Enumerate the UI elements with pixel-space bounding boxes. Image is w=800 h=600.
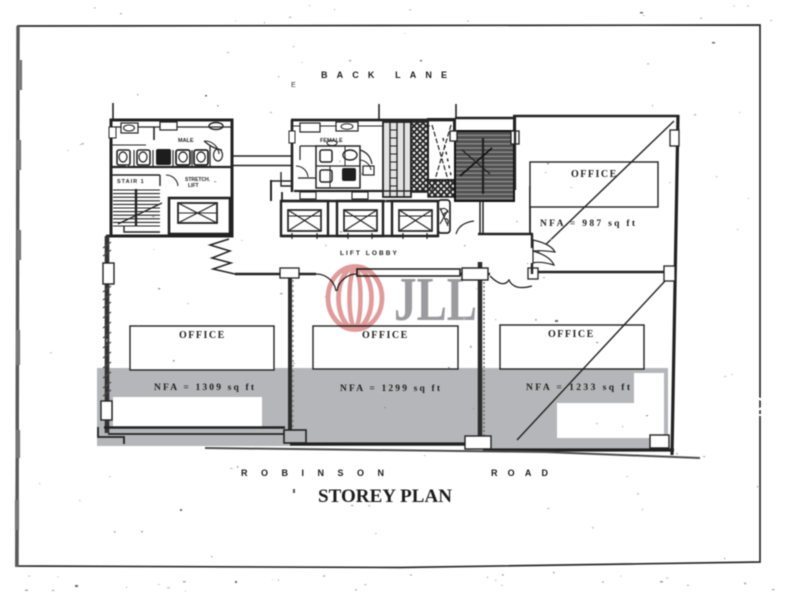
svg-text:ROAD: ROAD	[491, 468, 561, 478]
svg-text:OFFICE: OFFICE	[571, 169, 618, 180]
svg-text:OFFICE: OFFICE	[179, 330, 226, 341]
svg-text:STAIR 1: STAIR 1	[117, 179, 145, 185]
svg-text:OFFICE: OFFICE	[548, 329, 595, 340]
svg-text:MALE: MALE	[178, 138, 194, 144]
svg-text:BACK LANE: BACK LANE	[321, 70, 455, 80]
svg-text:JLL: JLL	[394, 266, 477, 334]
svg-text:LIFT LOBBY: LIFT LOBBY	[340, 250, 398, 257]
svg-text:STOREY PLAN: STOREY PLAN	[318, 486, 453, 507]
svg-text:ROBINSON: ROBINSON	[241, 468, 397, 478]
svg-text:E: E	[291, 82, 296, 89]
svg-text:LIFT: LIFT	[188, 183, 199, 189]
